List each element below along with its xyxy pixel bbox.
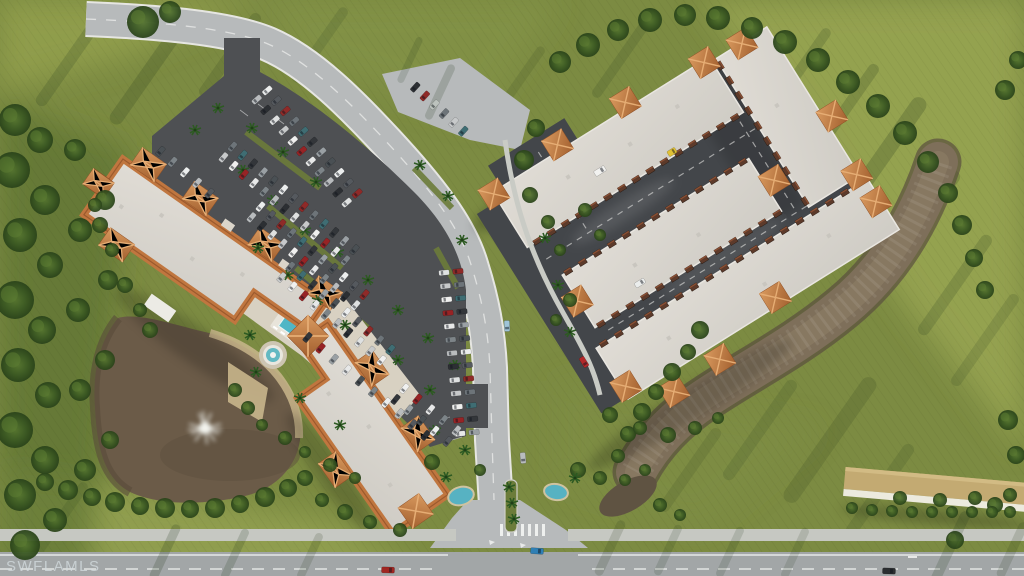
car [444,323,455,329]
site-plan-canvas [0,0,1024,576]
car [882,568,895,574]
car [448,364,459,370]
car [462,362,473,368]
car [440,283,451,289]
car [460,349,471,355]
mls-watermark: SWFLAMLS [6,558,101,575]
courtyard-fountain [259,341,287,369]
car [459,335,470,341]
car [445,337,456,343]
car [443,310,454,316]
car [504,320,510,331]
car [439,270,450,276]
car [468,429,479,435]
car [454,282,465,288]
sidewalk-west [0,529,456,541]
car [452,404,463,410]
car [447,350,458,356]
car [455,295,466,301]
car [381,567,394,573]
car [520,452,526,463]
car [463,376,474,382]
car [467,416,478,422]
car [464,389,475,395]
car [452,268,463,274]
car [466,402,477,408]
car [449,377,460,383]
car [451,390,462,396]
car [458,322,469,328]
aerial-site-rendering: SWFLAMLS [0,0,1024,576]
car [456,308,467,314]
car [441,296,452,302]
car [530,548,543,555]
car [453,417,464,423]
